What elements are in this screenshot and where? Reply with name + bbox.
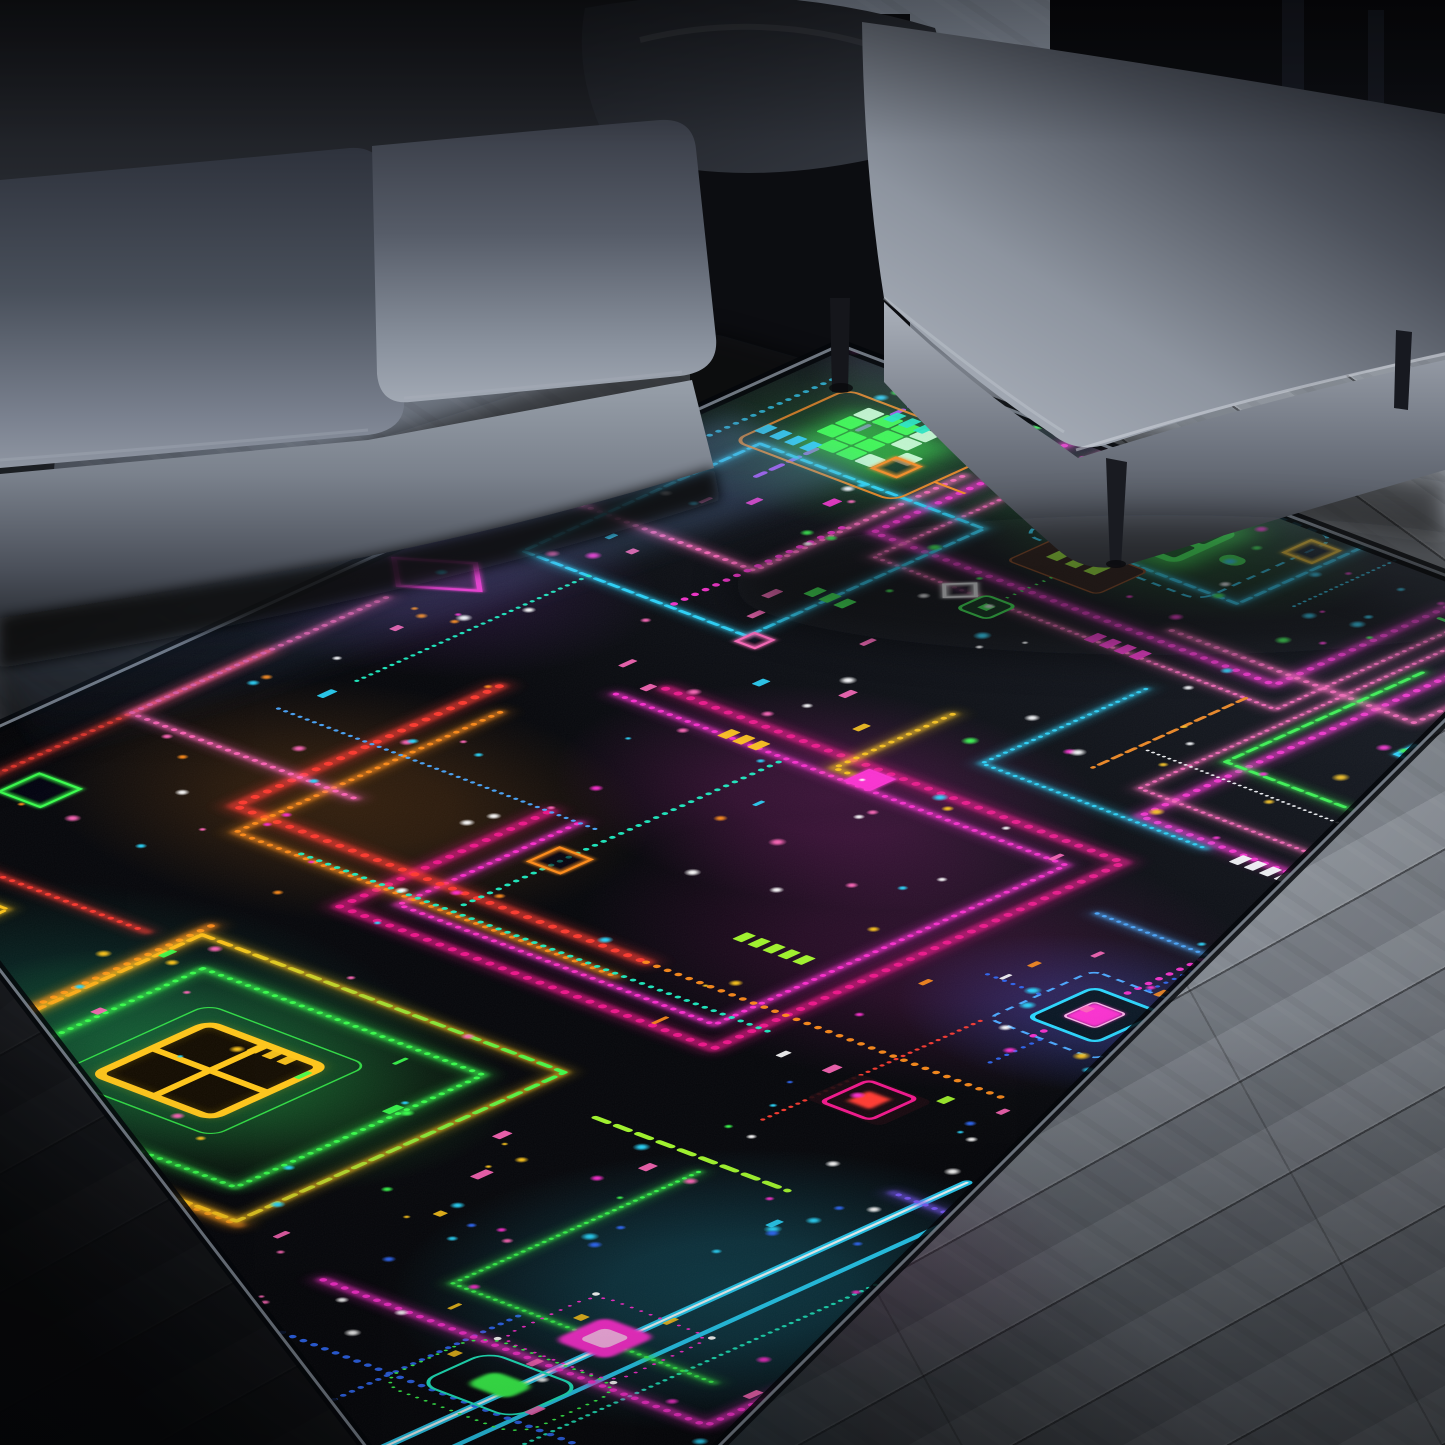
circuit-glyphs xyxy=(909,1273,963,1295)
sofa-seat-left xyxy=(0,148,404,468)
sofa-seat-right xyxy=(372,120,716,402)
living-room-scene xyxy=(0,0,1445,1445)
circuit-via xyxy=(939,1301,983,1319)
ottoman-leg-front-foot xyxy=(1106,560,1126,568)
sofa-leg-gap xyxy=(830,298,850,392)
circuit-via xyxy=(1202,1005,1257,1028)
sofa-leg-gap-foot xyxy=(829,383,853,393)
scene-art xyxy=(0,0,1445,1445)
circuit-glyphs xyxy=(1025,1150,1094,1177)
